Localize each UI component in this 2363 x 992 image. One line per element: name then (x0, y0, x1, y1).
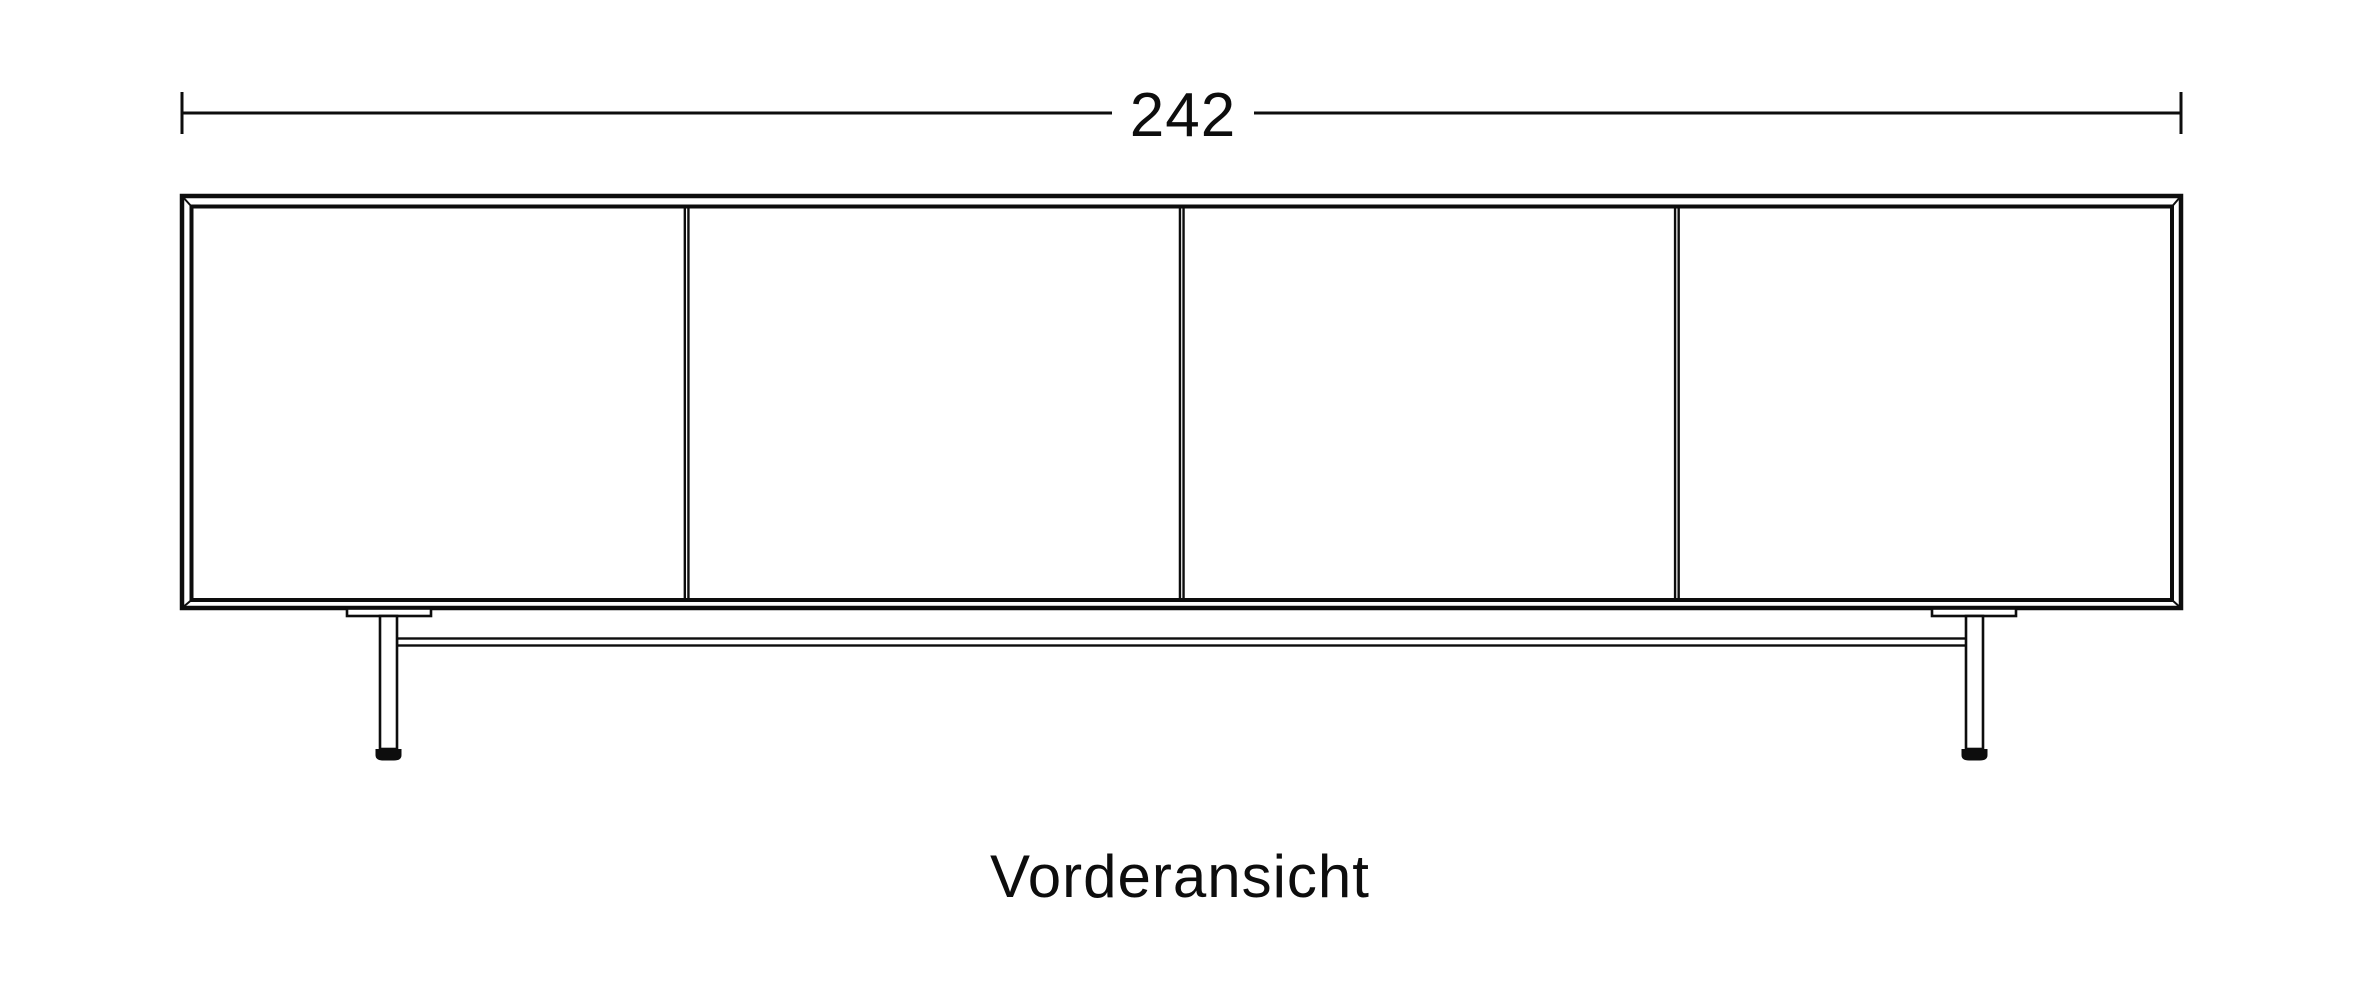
dimension-value-label: 242 (1130, 81, 1236, 150)
right-leg-assembly (1932, 609, 2016, 761)
cabinet-outer-outline (182, 196, 2181, 608)
cabinet-body (182, 196, 2181, 608)
base-frame (347, 609, 2016, 761)
left-leg-assembly (347, 609, 431, 761)
base-rail (397, 639, 1969, 646)
left-leg-foot (376, 749, 402, 761)
width-dimension: 242 (182, 81, 2181, 150)
right-leg-foot (1962, 749, 1988, 761)
view-caption: Vorderansicht (990, 843, 1370, 910)
technical-drawing-canvas: 242 (0, 0, 2363, 992)
sideboard-front-view-drawing: 242 (0, 0, 2363, 992)
right-leg (1966, 616, 1983, 749)
left-leg (380, 616, 397, 749)
